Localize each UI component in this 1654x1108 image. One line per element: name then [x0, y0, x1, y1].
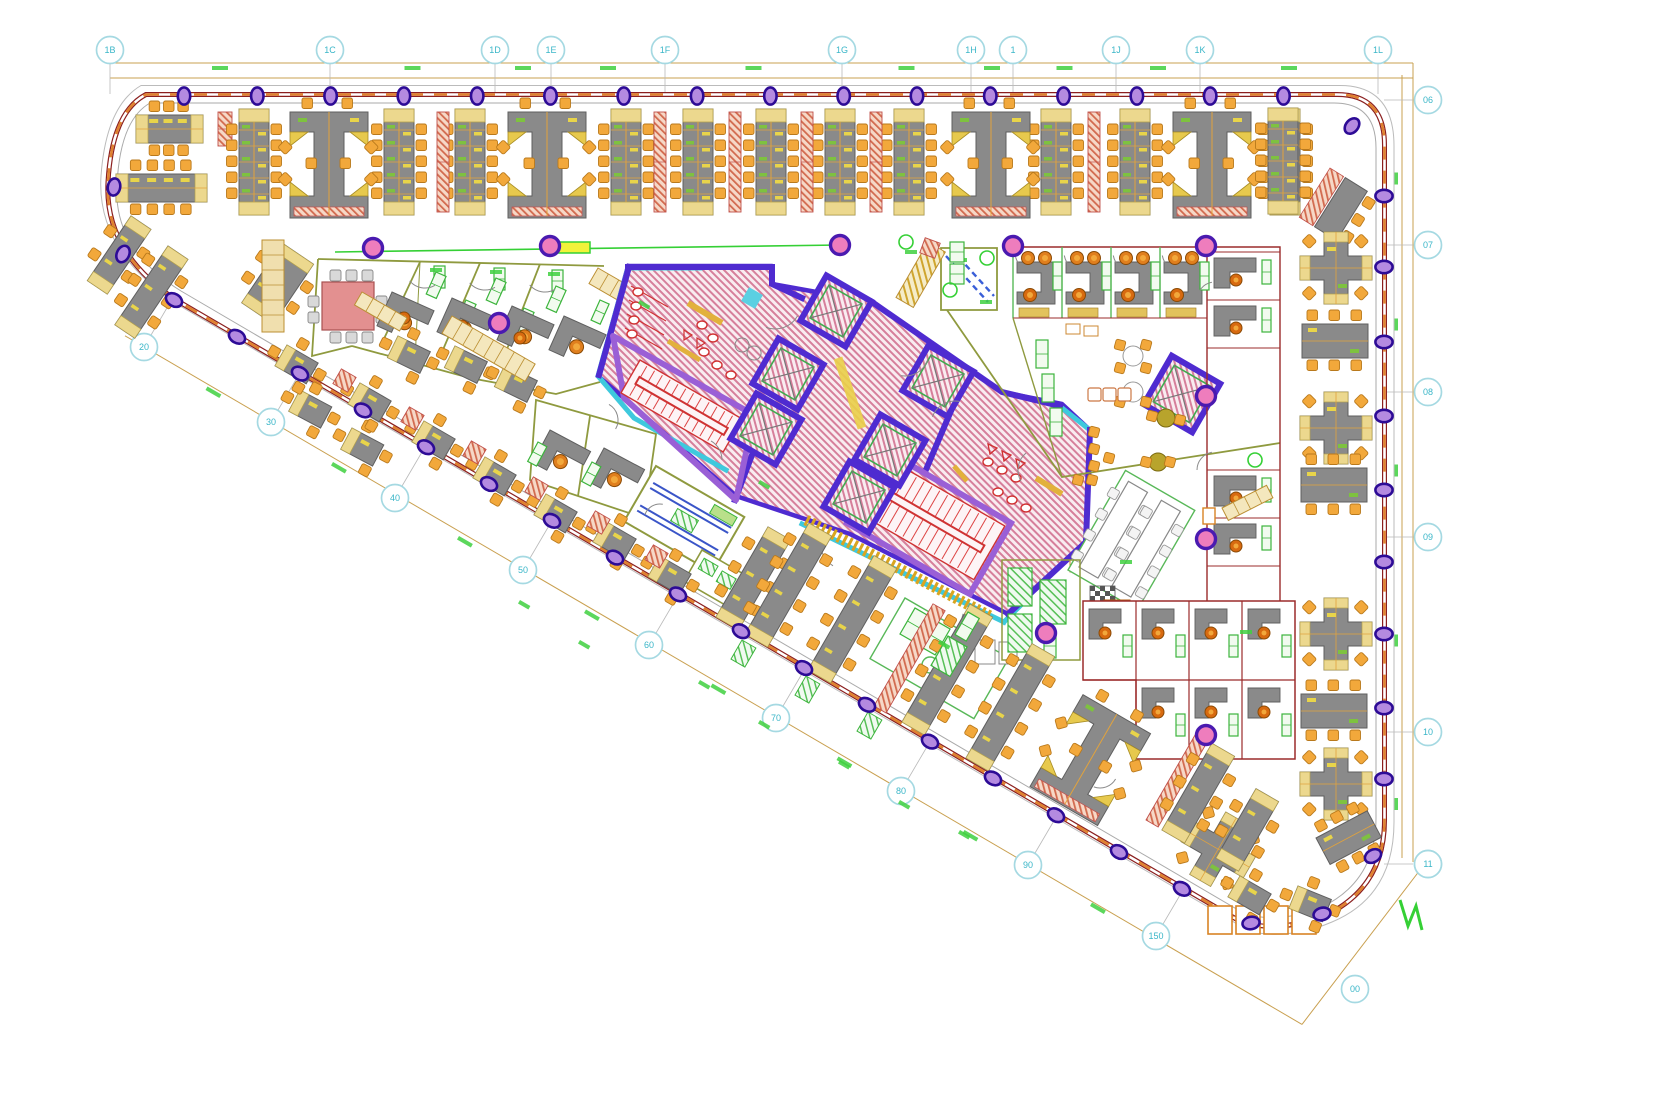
- svg-text:60: 60: [644, 640, 654, 650]
- svg-text:1B: 1B: [104, 45, 115, 55]
- svg-text:10: 10: [1423, 727, 1433, 737]
- svg-text:90: 90: [1023, 860, 1033, 870]
- svg-text:40: 40: [390, 493, 400, 503]
- svg-text:1: 1: [1010, 45, 1015, 55]
- svg-text:1J: 1J: [1111, 45, 1121, 55]
- svg-text:20: 20: [139, 342, 149, 352]
- svg-text:30: 30: [266, 417, 276, 427]
- svg-text:1D: 1D: [489, 45, 501, 55]
- svg-text:1F: 1F: [660, 45, 671, 55]
- svg-text:06: 06: [1423, 95, 1433, 105]
- svg-text:09: 09: [1423, 532, 1433, 542]
- svg-text:07: 07: [1423, 240, 1433, 250]
- svg-text:80: 80: [896, 786, 906, 796]
- svg-text:1C: 1C: [324, 45, 336, 55]
- svg-text:1E: 1E: [545, 45, 556, 55]
- svg-text:70: 70: [771, 713, 781, 723]
- svg-text:08: 08: [1423, 387, 1433, 397]
- svg-text:00: 00: [1350, 984, 1360, 994]
- svg-text:1K: 1K: [1194, 45, 1205, 55]
- svg-text:1G: 1G: [836, 45, 848, 55]
- svg-text:1H: 1H: [965, 45, 977, 55]
- svg-text:50: 50: [518, 565, 528, 575]
- svg-text:150: 150: [1148, 931, 1163, 941]
- svg-text:1L: 1L: [1373, 45, 1383, 55]
- svg-text:11: 11: [1423, 859, 1432, 869]
